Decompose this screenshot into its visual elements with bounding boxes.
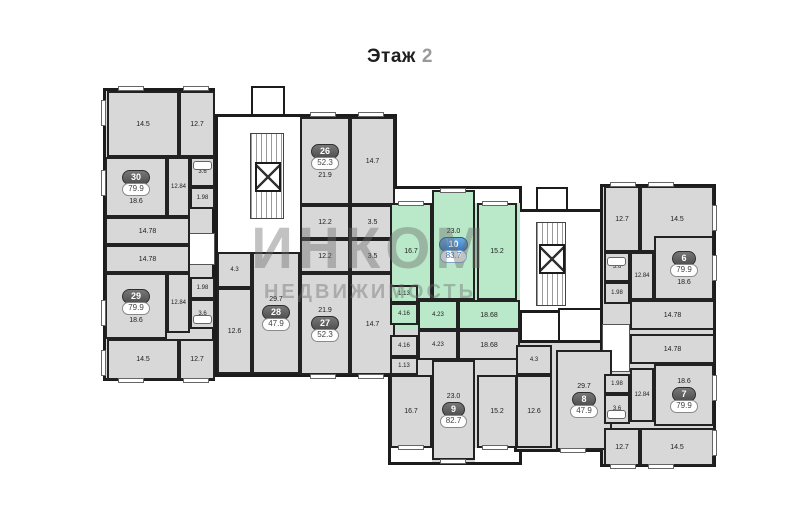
apartment-area: 47.9 bbox=[262, 318, 290, 331]
window bbox=[118, 378, 144, 383]
room: 14.78 bbox=[630, 334, 715, 364]
window bbox=[712, 430, 717, 456]
apartment-badge: 2979.9 bbox=[122, 289, 150, 315]
bathtub-icon bbox=[607, 257, 626, 266]
window bbox=[712, 375, 717, 401]
apartment-area: 79.9 bbox=[122, 302, 150, 315]
apartment-badge: 679.9 bbox=[670, 251, 698, 277]
apartment-area: 52.3 bbox=[311, 329, 339, 342]
window bbox=[482, 201, 508, 206]
window bbox=[310, 112, 336, 117]
room-area-label: 12.84 bbox=[634, 392, 649, 398]
room: 12.7 bbox=[604, 428, 640, 466]
room: 14.5 bbox=[640, 428, 714, 466]
apartment-badge: 847.9 bbox=[570, 392, 598, 418]
window bbox=[440, 459, 466, 464]
window bbox=[101, 100, 106, 126]
window bbox=[482, 445, 508, 450]
window bbox=[610, 182, 636, 187]
apartment-area: 82.7 bbox=[440, 415, 468, 428]
apartment-badge: 3079.9 bbox=[122, 170, 150, 196]
apartment-badge: 982.7 bbox=[440, 402, 468, 428]
window bbox=[183, 378, 209, 383]
window bbox=[712, 205, 717, 231]
window bbox=[712, 255, 717, 281]
window bbox=[648, 464, 674, 469]
room-area-label: 1.98 bbox=[611, 381, 623, 387]
room: 3.6 bbox=[604, 394, 630, 424]
window bbox=[101, 300, 106, 326]
apartment-area: 79.9 bbox=[670, 264, 698, 277]
apartment-area: 83.7 bbox=[440, 250, 468, 263]
window bbox=[398, 445, 424, 450]
window bbox=[398, 201, 424, 206]
window bbox=[560, 448, 586, 453]
window bbox=[358, 112, 384, 117]
room-area-label: 18.6 bbox=[677, 378, 691, 385]
apartment-badge: 2847.9 bbox=[262, 305, 290, 331]
apartment-area: 52.3 bbox=[311, 157, 339, 170]
window bbox=[310, 374, 336, 379]
bathtub-icon bbox=[193, 161, 212, 170]
window bbox=[440, 188, 466, 193]
window bbox=[358, 374, 384, 379]
apartment-badge-selected: 1083.7 bbox=[439, 237, 467, 263]
window bbox=[648, 182, 674, 187]
window bbox=[610, 464, 636, 469]
apartment-area: 79.9 bbox=[670, 400, 698, 413]
window bbox=[183, 86, 209, 91]
bathtub-icon bbox=[607, 410, 626, 419]
window bbox=[118, 86, 144, 91]
room: 1.98 bbox=[604, 374, 630, 394]
bathtub-icon bbox=[193, 315, 212, 324]
apartment-badge: 2652.3 bbox=[311, 144, 339, 170]
room-area-label: 14.5 bbox=[670, 444, 684, 451]
room-area-label: 12.7 bbox=[615, 444, 629, 451]
window bbox=[101, 170, 106, 196]
window bbox=[101, 350, 106, 376]
apartment-badge: 779.9 bbox=[670, 387, 698, 413]
room: 12.84 bbox=[630, 368, 654, 422]
apartment-area: 47.9 bbox=[570, 405, 598, 418]
room-area-label: 14.78 bbox=[664, 346, 682, 353]
apartment-area: 79.9 bbox=[122, 183, 150, 196]
room: 18.6 779.9 bbox=[654, 364, 714, 426]
apartment-badge: 2752.3 bbox=[311, 316, 339, 342]
floor-plan-page: Этаж2 14.5 12.7 3079.9 18.6 12.84 3.6 1.… bbox=[0, 0, 800, 529]
